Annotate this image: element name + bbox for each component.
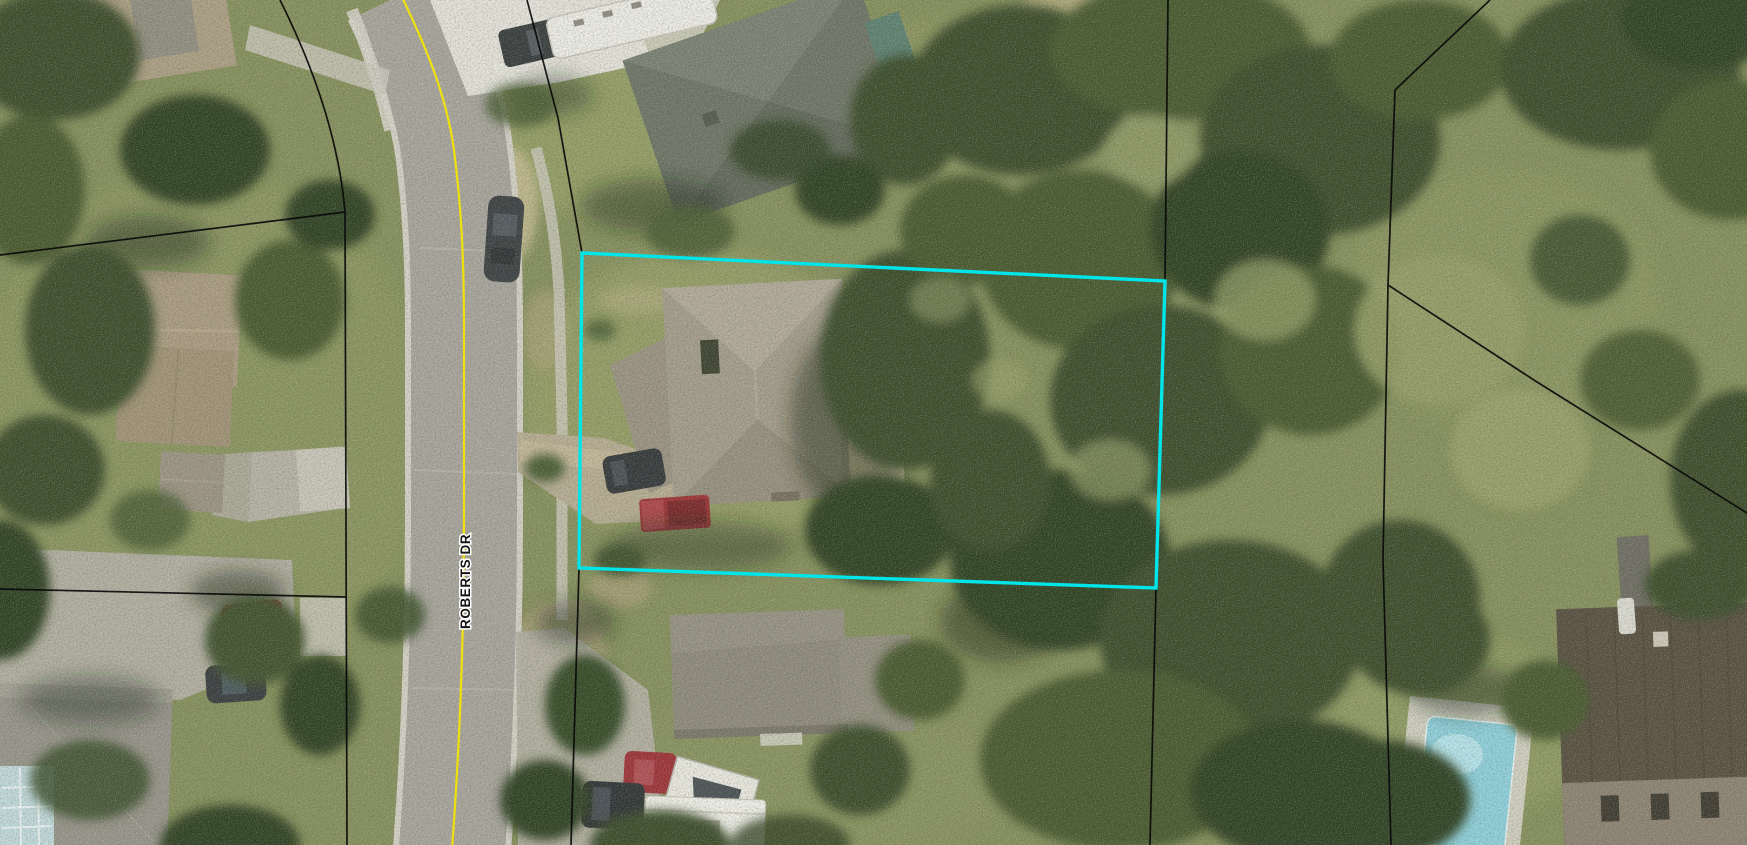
aerial-scene: ROBERTS DR [0,0,1747,845]
map-viewport[interactable]: ROBERTS DR [0,0,1747,845]
photo-grain-dark [0,0,1747,845]
road-label: ROBERTS DR [458,534,473,629]
